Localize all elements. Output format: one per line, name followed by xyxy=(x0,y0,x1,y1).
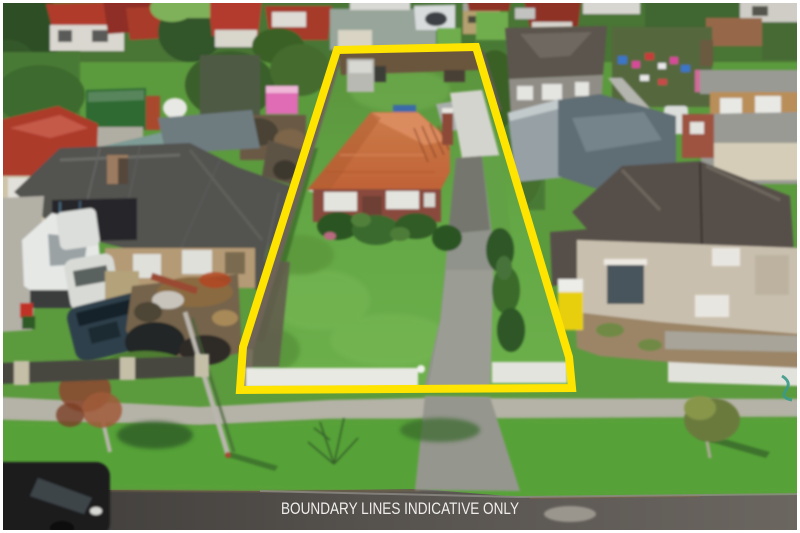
svg-text:BOUNDARY LINES INDICATIVE ONLY: BOUNDARY LINES INDICATIVE ONLY xyxy=(281,500,519,518)
